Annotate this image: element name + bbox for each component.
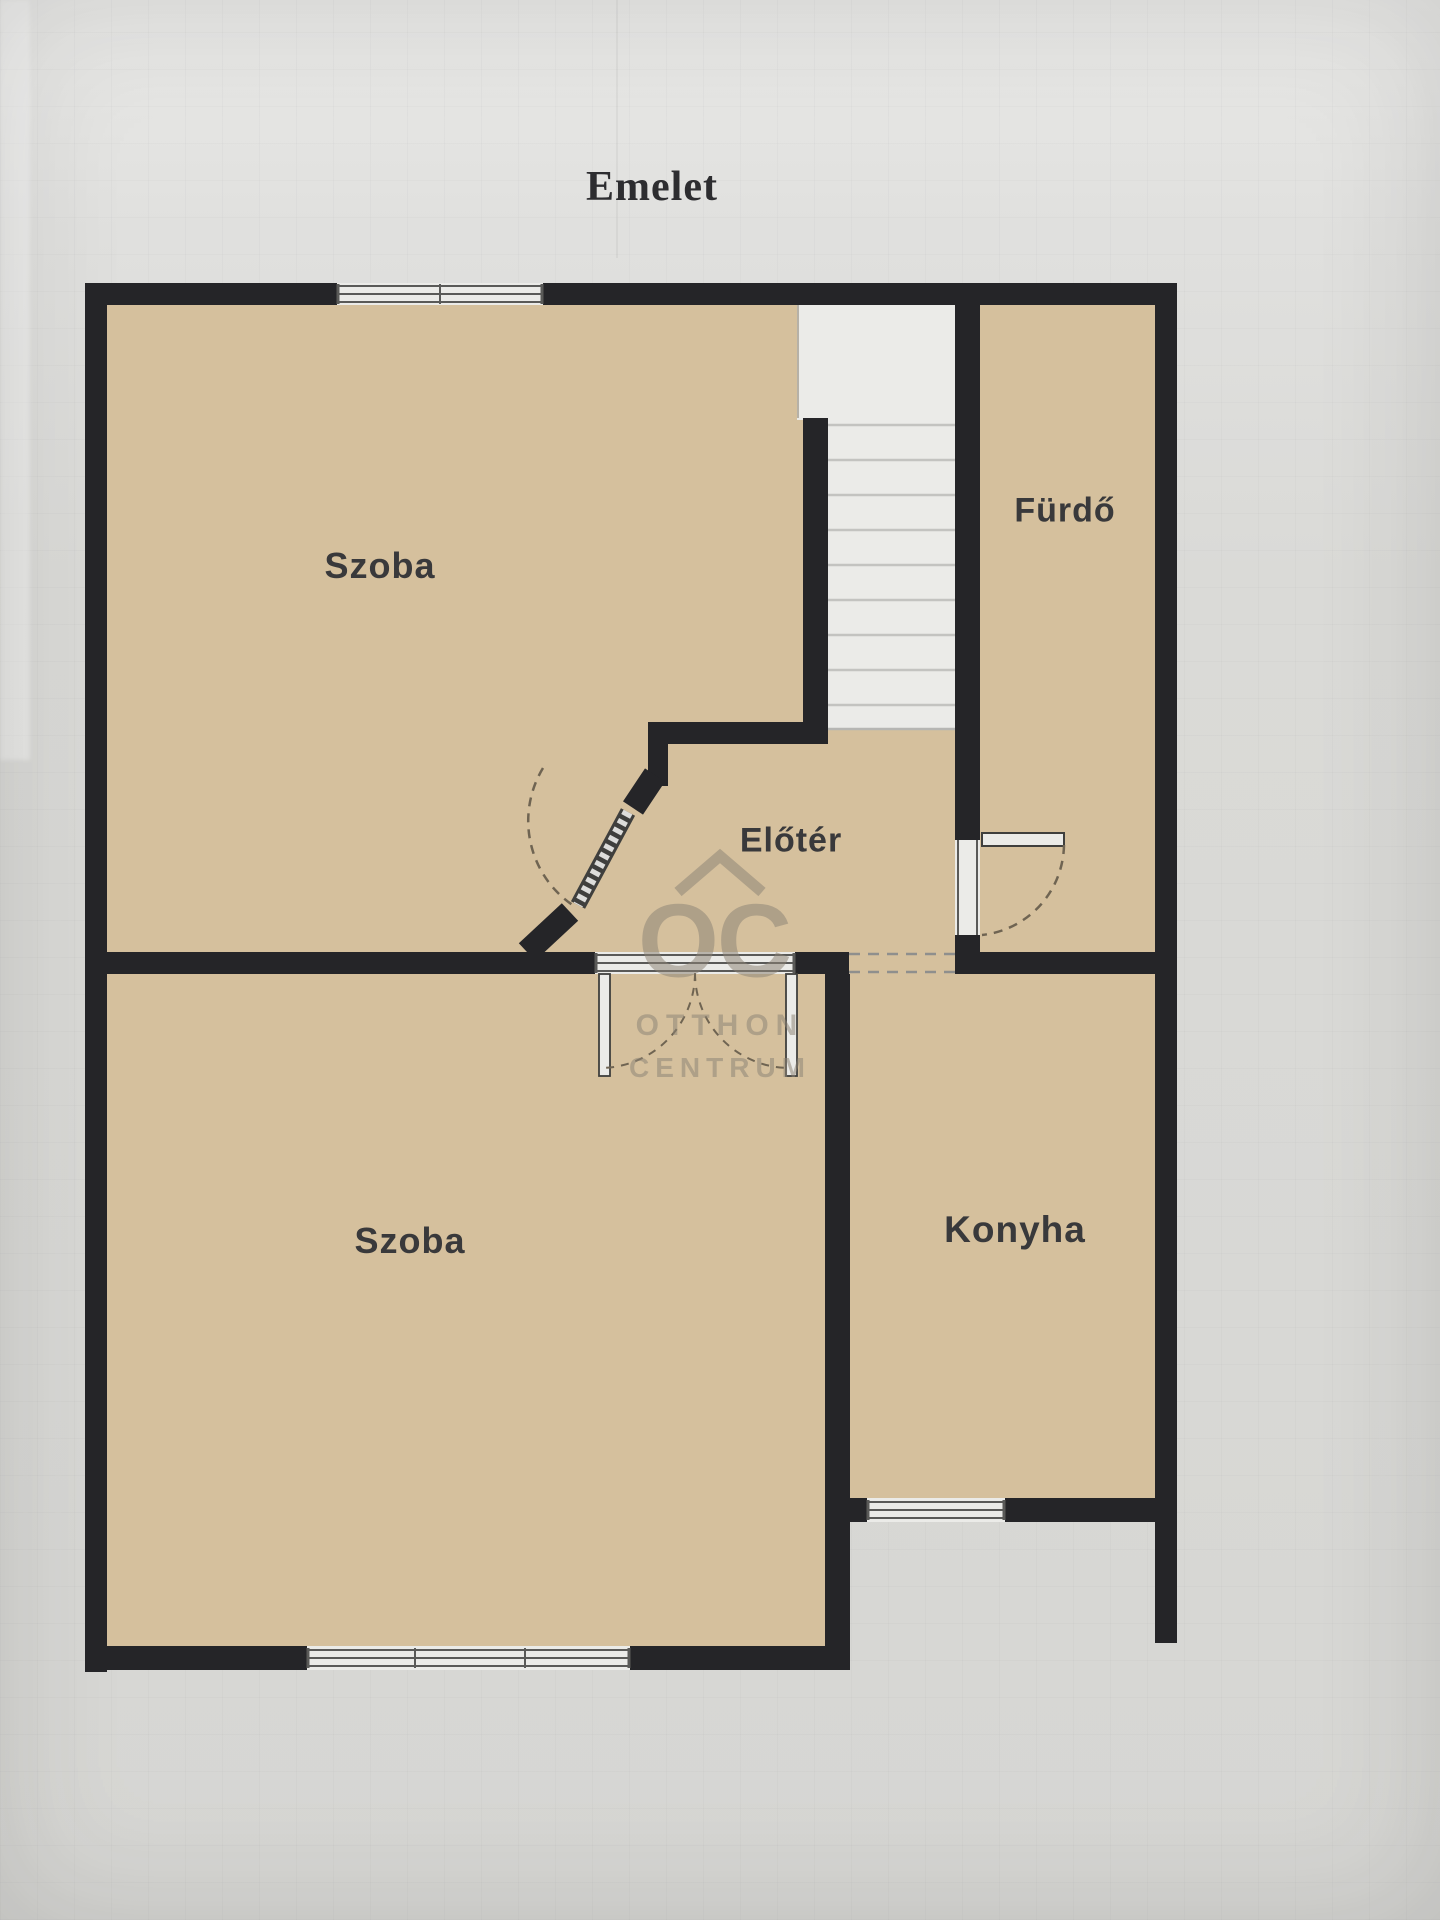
opening-eloter-konyha (849, 952, 955, 974)
window-szoba-bottom (307, 1646, 630, 1670)
wall-top-left-segment (85, 283, 337, 305)
page-title: Emelet (586, 163, 718, 211)
wall-stair-left (803, 418, 828, 744)
wall-konyha-bottom-right (1005, 1498, 1155, 1522)
wall-stair-furdo-upper (955, 305, 980, 840)
floor-area (107, 305, 1155, 1646)
wall-szoba2-bottom-right (630, 1646, 850, 1670)
wall-szoba-divider (107, 952, 595, 974)
wall-furdo-bottom (955, 952, 1155, 974)
wall-szoba2-right-step (825, 1498, 850, 1668)
wall-szoba2-bottom-left (107, 1646, 307, 1670)
watermark-name-line1: OTTHON (636, 1009, 805, 1043)
wall-konyha-bottom-left (850, 1498, 867, 1522)
room-label-eloter: Előtér (740, 822, 842, 861)
window-top (337, 283, 543, 305)
wall-right (1155, 283, 1177, 1643)
room-label-szoba-top: Szoba (324, 545, 435, 587)
room-label-furdo: Fürdő (1014, 492, 1115, 531)
window-konyha (867, 1498, 1005, 1522)
room-label-szoba-bottom: Szoba (354, 1220, 465, 1262)
room-label-konyha: Konyha (944, 1209, 1086, 1251)
watermark-monogram: OC (638, 883, 790, 1002)
wall-konyha-left (825, 974, 850, 1498)
wall-band-middle (795, 952, 849, 974)
watermark-name-line2: CENTRUM (629, 1052, 811, 1084)
wall-top-right-segment (543, 283, 1177, 305)
wall-left (85, 283, 107, 1672)
scanned-floorplan-page: OC OTTHON CENTRUM Emelet Szoba Fürdő Elő… (0, 0, 1440, 1920)
wall-eloter-top (648, 722, 828, 744)
